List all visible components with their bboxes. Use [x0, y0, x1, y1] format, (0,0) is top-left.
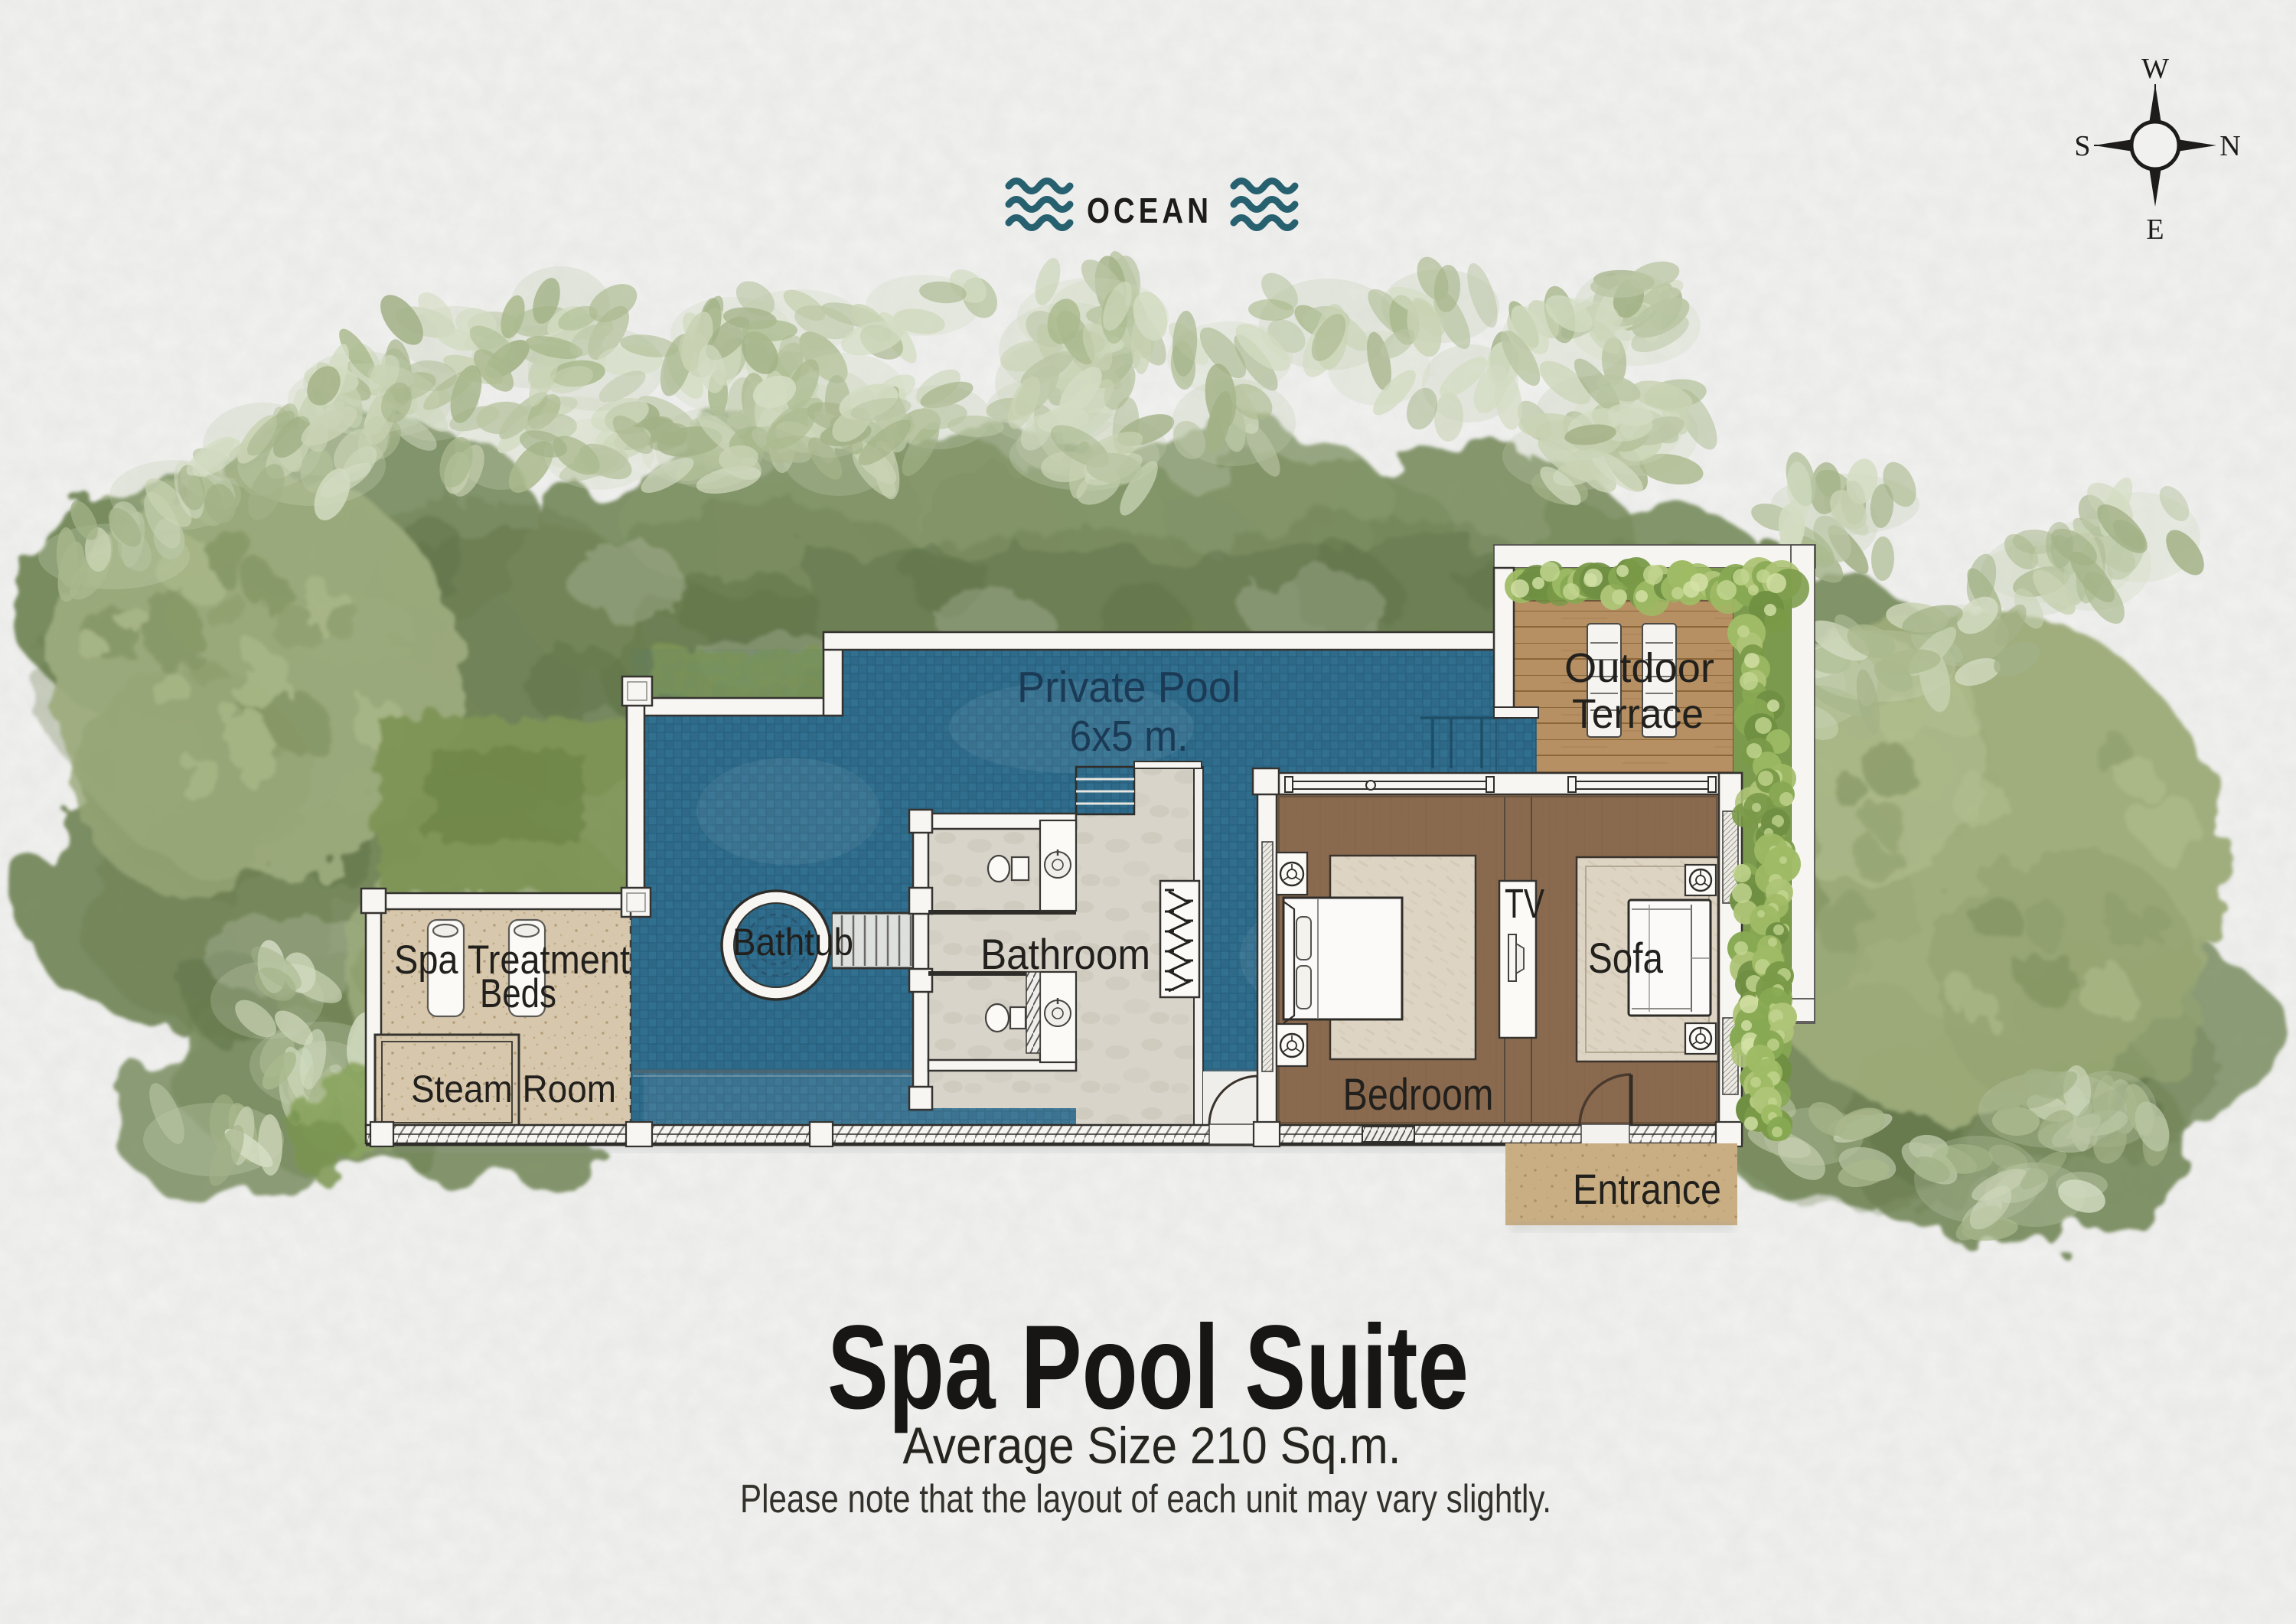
svg-text:Spa Pool Suite: Spa Pool Suite — [827, 1301, 1469, 1434]
svg-text:Entrance: Entrance — [1573, 1165, 1721, 1213]
svg-text:Steam Room: Steam Room — [411, 1068, 616, 1110]
svg-text:S: S — [2074, 130, 2090, 162]
svg-text:Terrace: Terrace — [1572, 691, 1704, 737]
svg-text:W: W — [2141, 53, 2169, 85]
svg-text:N: N — [2219, 130, 2240, 162]
svg-text:Bathtub: Bathtub — [732, 921, 853, 964]
svg-text:Private Pool: Private Pool — [1017, 663, 1241, 712]
svg-text:Bedroom: Bedroom — [1343, 1070, 1494, 1120]
svg-text:Average Size 210 Sq.m.: Average Size 210 Sq.m. — [903, 1417, 1401, 1475]
svg-text:TV: TV — [1505, 881, 1544, 927]
svg-text:Sofa: Sofa — [1588, 934, 1664, 982]
svg-text:Beds: Beds — [480, 971, 556, 1016]
svg-text:Outdoor: Outdoor — [1564, 645, 1714, 691]
svg-text:Bathroom: Bathroom — [980, 930, 1150, 978]
svg-text:Please note that the layout of: Please note that the layout of each unit… — [740, 1477, 1551, 1521]
svg-text:OCEAN: OCEAN — [1087, 191, 1212, 230]
svg-text:6x5 m.: 6x5 m. — [1070, 712, 1189, 761]
svg-text:E: E — [2146, 214, 2164, 246]
